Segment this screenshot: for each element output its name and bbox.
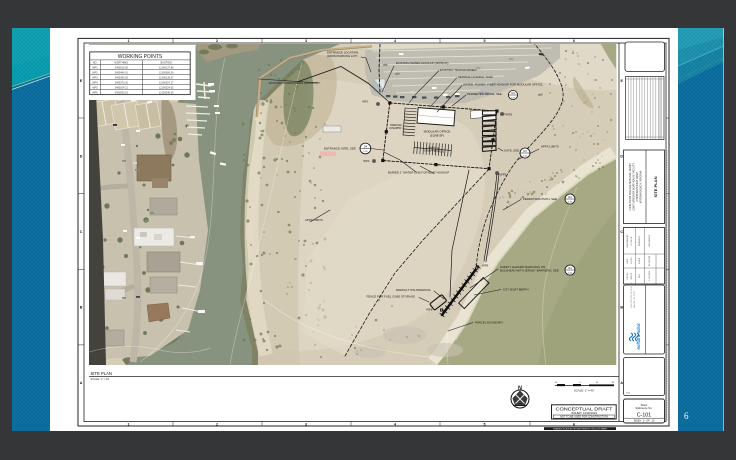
svg-text:1-01: 1-01 xyxy=(523,155,528,157)
svg-text:D4: D4 xyxy=(568,266,572,270)
svg-text:WP6: WP6 xyxy=(426,308,433,312)
svg-text:2: 2 xyxy=(216,422,218,426)
svg-text:WP3: WP3 xyxy=(92,76,98,79)
svg-text:3490390.05: 3490390.05 xyxy=(115,76,129,79)
svg-text:5: 5 xyxy=(484,39,486,43)
svg-text:1: 1 xyxy=(128,422,130,426)
svg-text:D: D xyxy=(620,154,623,158)
svg-text:MARINA TYPE PEDESTAL: MARINA TYPE PEDESTAL xyxy=(396,288,431,292)
svg-text:1-01: 1-01 xyxy=(363,151,368,153)
svg-text:1-01: 1-01 xyxy=(568,272,573,274)
svg-text:2: 2 xyxy=(216,39,218,43)
svg-text:WP5: WP5 xyxy=(482,264,489,268)
svg-text:D4: D4 xyxy=(523,149,527,153)
svg-text:SEWAGE HOLDING TANK: SEWAGE HOLDING TANK xyxy=(458,75,493,79)
svg-text:WP2: WP2 xyxy=(506,113,513,117)
svg-text:12/2019: 12/2019 xyxy=(631,258,633,265)
svg-text:WP5: WP5 xyxy=(92,86,98,89)
svg-text:WP4: WP4 xyxy=(363,159,370,163)
svg-text:3: 3 xyxy=(305,422,307,426)
svg-text:6: 6 xyxy=(573,39,575,43)
svg-text:5: 5 xyxy=(484,422,486,426)
svg-text:4: 4 xyxy=(394,422,396,426)
svg-text:3490515.95: 3490515.95 xyxy=(115,66,129,69)
svg-text:SITE PLAN: SITE PLAN xyxy=(653,176,658,197)
svg-text:DRAWN BY: DRAWN BY xyxy=(638,235,641,246)
svg-text:1-01: 1-01 xyxy=(511,97,516,99)
svg-text:ISSUED: 12/20/2019: ISSUED: 12/20/2019 xyxy=(571,411,597,415)
svg-text:PERIMETER FENCE, SEE: PERIMETER FENCE, SEE xyxy=(467,92,502,96)
svg-text:DRAWING SCALE AS SHOWN PRINTED: DRAWING SCALE AS SHOWN PRINTED ON 11X17 … xyxy=(553,428,608,431)
svg-text:80: 80 xyxy=(612,382,615,384)
svg-text:D4: D4 xyxy=(511,91,515,95)
svg-text:WP2: WP2 xyxy=(92,71,98,74)
svg-text:NORTHING: NORTHING xyxy=(114,60,128,64)
svg-text:3490104.21: 3490104.21 xyxy=(115,86,129,89)
svg-text:A: A xyxy=(620,381,623,385)
svg-text:NOT TO BE USED FOR CONSTRUCTIO: NOT TO BE USED FOR CONSTRUCTION xyxy=(560,416,608,419)
svg-text:PEDESTRIAN PATH, SEE: PEDESTRIAN PATH, SEE xyxy=(523,197,557,201)
svg-text:(FROM PARKING LOT): (FROM PARKING LOT) xyxy=(327,54,357,58)
svg-text:moffatt & nichol: moffatt & nichol xyxy=(636,324,641,350)
svg-text:12190137.86: 12190137.86 xyxy=(159,66,174,69)
svg-text:JOB NO.: JOB NO. xyxy=(627,272,629,280)
svg-text:12190139.57: 12190139.57 xyxy=(159,76,174,79)
svg-text:N: N xyxy=(518,386,522,392)
svg-text:D4: D4 xyxy=(568,195,572,199)
svg-text:DATE: DATE xyxy=(626,258,629,264)
svg-text:3490370.30: 3490370.30 xyxy=(115,81,129,84)
svg-text:C: C xyxy=(80,230,83,234)
svg-text:SCALE: 1" = 40': SCALE: 1" = 40' xyxy=(574,388,595,392)
svg-text:WATER, POWER, FIBER HOOKUP FOR: WATER, POWER, FIBER HOOKUP FOR MODULAR O… xyxy=(463,83,543,87)
svg-text:VIRGINIA BEACH, VIRGINIA: VIRGINIA BEACH, VIRGINIA xyxy=(640,170,643,203)
svg-text:ENTRANCE GATE, SEE: ENTRANCE GATE, SEE xyxy=(324,146,356,150)
svg-text:D4: D4 xyxy=(364,144,368,148)
svg-text:9905-01: 9905-01 xyxy=(631,273,633,280)
svg-text:6: 6 xyxy=(684,411,689,421)
svg-text:B: B xyxy=(80,306,83,310)
svg-text:CHECKED BY: CHECKED BY xyxy=(649,234,651,247)
svg-text:M. SMITH: M. SMITH xyxy=(631,236,633,245)
svg-text:6: 6 xyxy=(573,422,575,426)
svg-text:WP6: WP6 xyxy=(92,91,98,94)
svg-text:D: D xyxy=(80,154,83,158)
svg-text:Reference No.: Reference No. xyxy=(636,406,653,410)
svg-text:3490090.53: 3490090.53 xyxy=(115,91,129,94)
svg-text:FENCE FOR FUEL CUBE STORAGE: FENCE FOR FUEL CUBE STORAGE xyxy=(367,295,416,299)
svg-text:WP5: WP5 xyxy=(500,173,507,177)
svg-text:GATE, SEE: GATE, SEE xyxy=(504,149,519,153)
svg-text:APPX LIMITS: APPX LIMITS xyxy=(305,218,323,222)
svg-text:EXISTING WINDSCREEN (APPROX): EXISTING WINDSCREEN (APPROX) xyxy=(269,81,318,85)
svg-text:CITY BOAT BERTH: CITY BOAT BERTH xyxy=(503,288,529,292)
svg-text:3: 3 xyxy=(305,39,307,43)
svg-text:12190397.27: 12190397.27 xyxy=(159,81,174,84)
svg-text:12190246.05: 12190246.05 xyxy=(159,91,174,94)
svg-text:WP1: WP1 xyxy=(92,66,98,69)
svg-text:SCALE: 1" = 40': SCALE: 1" = 40' xyxy=(91,377,110,381)
svg-text:3490494.01: 3490494.01 xyxy=(115,71,129,74)
svg-text:4: 4 xyxy=(394,39,396,43)
svg-text:INDEX 3 OF 10: INDEX 3 OF 10 xyxy=(634,420,655,423)
svg-text:SCALE: SCALE xyxy=(638,257,641,264)
svg-text:C: C xyxy=(620,230,623,234)
svg-text:WP1: WP1 xyxy=(362,100,369,104)
svg-text:(UNAPPR.): (UNAPPR.) xyxy=(389,126,402,130)
svg-text:2209 CENTURY DR SUITE 500: 2209 CENTURY DR SUITE 500 xyxy=(631,283,633,309)
svg-text:C-101.DWG: C-101.DWG xyxy=(649,270,651,281)
svg-text:WORKING POINTS: WORKING POINTS xyxy=(118,54,163,60)
svg-text:E: E xyxy=(80,79,83,83)
svg-text:BURIED 1" WATER LINE FOR BOAT: BURIED 1" WATER LINE FOR BOAT HOOKUP xyxy=(388,171,449,175)
svg-text:DESIGNED BY: DESIGNED BY xyxy=(627,234,629,248)
svg-text:40: 40 xyxy=(596,382,599,384)
svg-text:SITE PLAN: SITE PLAN xyxy=(91,371,112,376)
svg-text:C-101: C-101 xyxy=(637,413,651,419)
svg-text:AS SHOWN: AS SHOWN xyxy=(648,255,651,266)
svg-text:A: A xyxy=(80,381,83,385)
svg-text:12190569.38: 12190569.38 xyxy=(159,71,174,74)
svg-text:0: 0 xyxy=(579,382,581,384)
svg-text:40: 40 xyxy=(555,382,558,384)
svg-text:12190524.05: 12190524.05 xyxy=(159,86,174,89)
svg-text:BULKHEAD WITH JERSEY BARRIERS,: BULKHEAD WITH JERSEY BARRIERS, SEE xyxy=(500,269,559,273)
svg-text:WP4: WP4 xyxy=(92,81,98,84)
svg-text:1: 1 xyxy=(128,39,130,43)
svg-text:RALEIGH, NC 27612: RALEIGH, NC 27612 xyxy=(633,291,636,308)
svg-text:APPX LIMITS: APPX LIMITS xyxy=(541,145,559,149)
svg-text:SEAL: SEAL xyxy=(626,392,631,395)
svg-text:E: E xyxy=(620,79,623,83)
svg-text:EXISTING WATER HOOKUP (APPROX): EXISTING WATER HOOKUP (APPROX) xyxy=(396,61,449,65)
svg-text:NO.: NO. xyxy=(93,60,98,64)
svg-text:(5,598 SF): (5,598 SF) xyxy=(430,133,444,137)
svg-text:1-01: 1-01 xyxy=(568,201,573,203)
svg-text:EXISTING TRANSFORMER: EXISTING TRANSFORMER xyxy=(440,68,477,72)
svg-text:PARCEL BOUNDARY: PARCEL BOUNDARY xyxy=(475,321,503,325)
svg-text:EASTING: EASTING xyxy=(161,60,172,64)
svg-text:B: B xyxy=(620,306,623,310)
